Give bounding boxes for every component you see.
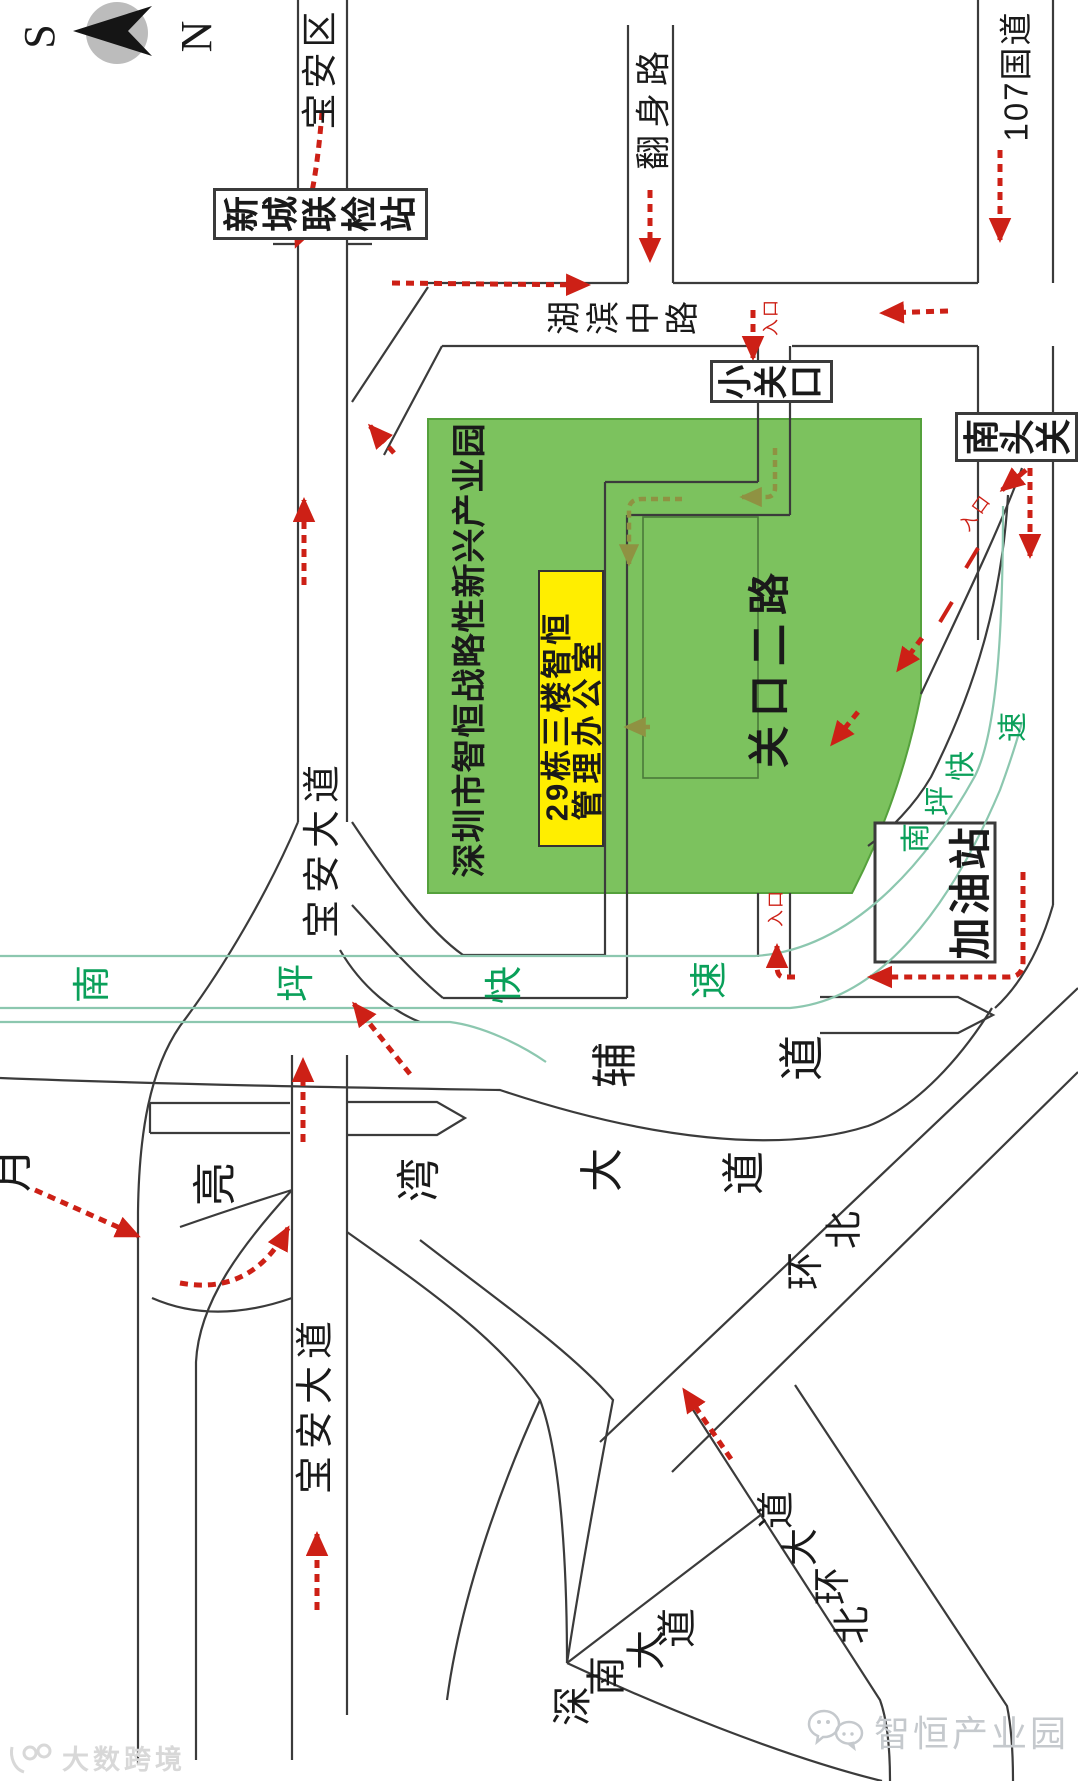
label-hubin-road: 湖滨中路	[548, 296, 700, 340]
platform-logo-icon	[8, 1741, 52, 1775]
compass-north-label: N	[175, 16, 219, 53]
office-line1: 29栋三楼智恒	[542, 611, 573, 821]
checkpoint-box: 新城联检站	[213, 188, 428, 240]
nantouguan-box: 南头关	[955, 412, 1078, 462]
entrance-label-hubin: 入口	[763, 298, 780, 336]
platform-watermark: 大数跨境	[8, 1738, 186, 1777]
platform-watermark-text: 大数跨境	[62, 1738, 186, 1777]
label-g107: 107国道	[1000, 10, 1033, 141]
label-baoan-district: 宝安区	[302, 6, 338, 129]
label-baoan-avenue-north: 宝安大道	[304, 758, 342, 938]
label-fanshen-road: 翻身路	[637, 44, 672, 170]
park-name: 深圳市智恒战略性新兴产业园	[453, 423, 487, 878]
wechat-icon	[806, 1708, 864, 1754]
compass-south-label: S	[18, 19, 62, 48]
park-area	[428, 419, 921, 893]
gas-station-label: 加油站	[950, 824, 992, 959]
xiaoguankou-box: 小关口	[710, 360, 833, 403]
map-canvas: S N 宝安区 翻身路 107国道 关口二路 深圳市智恒战略性新兴产业园 宝安大…	[0, 0, 1078, 1781]
road-network	[0, 0, 1078, 1781]
brand-watermark: 智恒产业园	[806, 1705, 1069, 1757]
label-baoan-avenue-south: 宝安大道	[297, 1314, 335, 1494]
brand-watermark-text: 智恒产业园	[874, 1705, 1069, 1757]
label-guankou-2nd-road: 关口二路	[749, 564, 791, 768]
compass-icon	[73, 2, 152, 64]
entrance-label-south: 入口	[768, 889, 785, 927]
office-line2: 管理办公室	[573, 636, 604, 821]
